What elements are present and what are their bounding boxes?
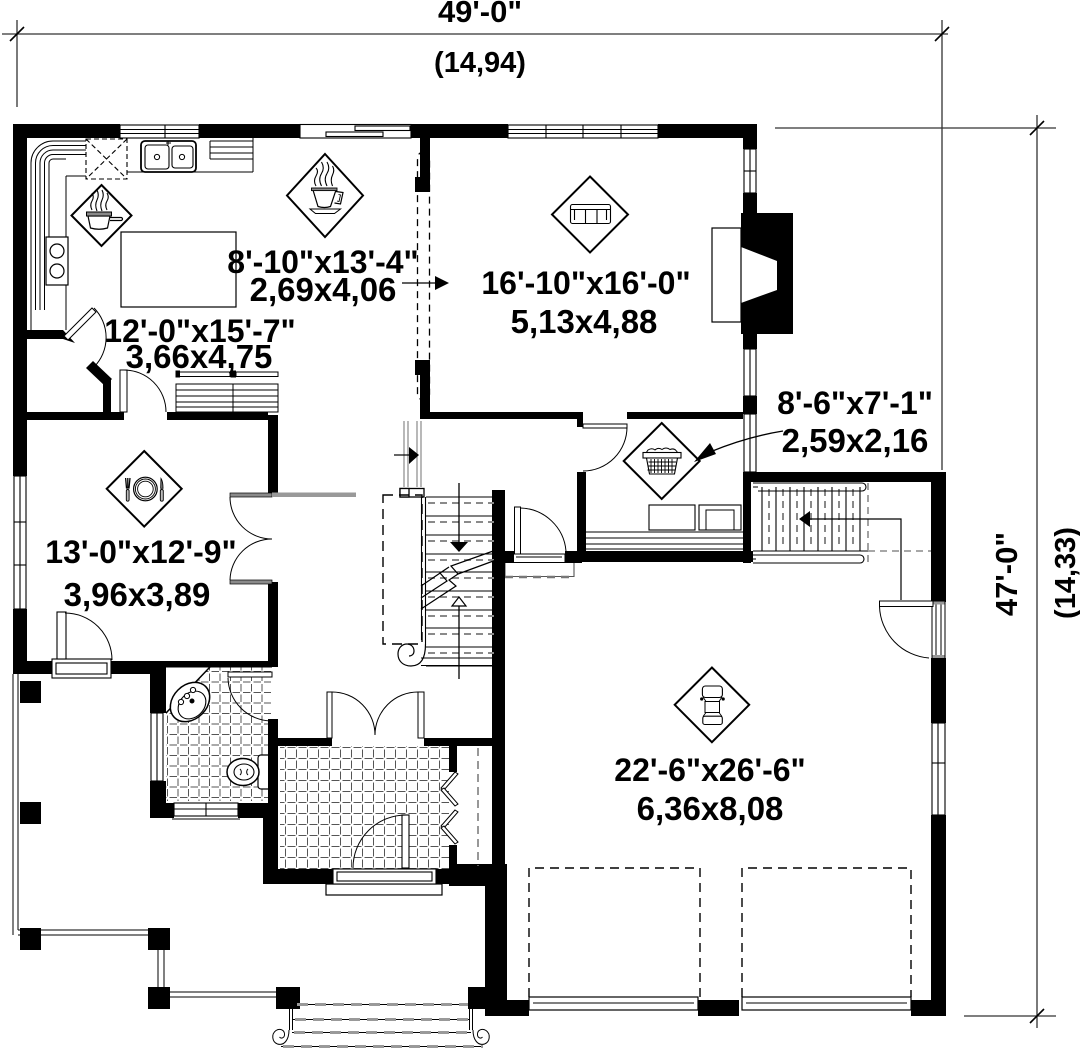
svg-text:(14,33): (14,33) — [1050, 527, 1080, 619]
svg-text:3,96x3,89: 3,96x3,89 — [64, 576, 211, 613]
svg-text:6,36x8,08: 6,36x8,08 — [637, 790, 784, 827]
svg-text:47'-0": 47'-0" — [989, 532, 1024, 616]
svg-text:22'-6"x26'-6": 22'-6"x26'-6" — [614, 752, 805, 788]
svg-text:2,69x4,06: 2,69x4,06 — [250, 271, 397, 308]
svg-text:49'-0": 49'-0" — [438, 0, 522, 29]
svg-text:3,66x4,75: 3,66x4,75 — [126, 338, 273, 375]
svg-text:(14,94): (14,94) — [434, 47, 526, 79]
svg-text:13'-0"x12'-9": 13'-0"x12'-9" — [45, 534, 236, 570]
svg-text:8'-6"x7'-1": 8'-6"x7'-1" — [777, 385, 933, 421]
svg-text:5,13x4,88: 5,13x4,88 — [511, 303, 658, 340]
svg-text:16'-10"x16'-0": 16'-10"x16'-0" — [481, 265, 690, 301]
svg-text:2,59x2,16: 2,59x2,16 — [782, 422, 929, 459]
